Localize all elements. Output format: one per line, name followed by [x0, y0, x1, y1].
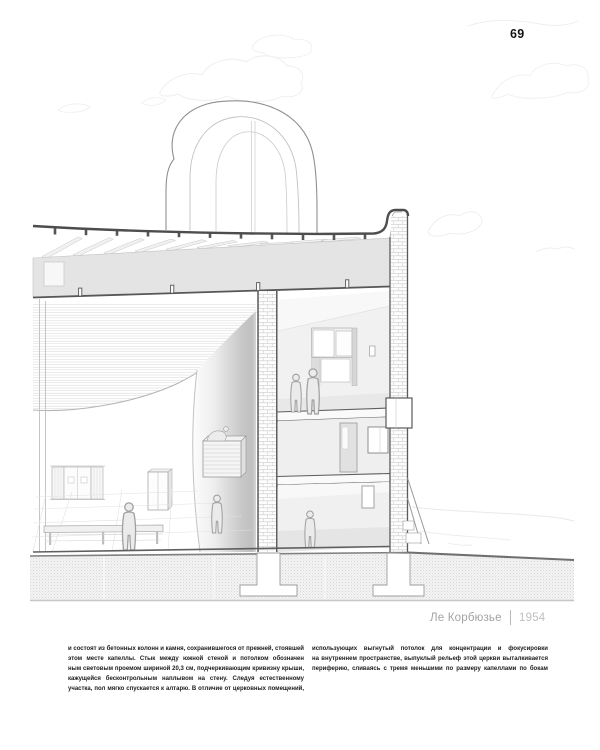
caption-architect: Ле Корбюзье — [430, 612, 502, 624]
ground — [30, 553, 574, 601]
book-page: 69 — [0, 0, 600, 750]
body-column-left: и состоят из бетонных колонн и камня, со… — [68, 644, 304, 694]
body-text-line: и состоят из бетонных колонн и камня, со… — [68, 644, 304, 654]
body-text-line: периферию, сливаясь с тремя меньшими по … — [312, 664, 548, 674]
body-text-line: на внутреннем пространстве, выпуклый рел… — [312, 654, 548, 664]
body-text-line: кажущейся бесконтрольным наплывом на сте… — [68, 674, 304, 684]
section-drawing — [0, 0, 600, 750]
hall-cabinet — [148, 469, 172, 510]
figure-caption: Ле Корбюзье 1954 — [430, 610, 545, 625]
body-text-line: ным световым проемом шириной 20,3 см, по… — [68, 664, 304, 674]
lower-room-window — [362, 486, 374, 508]
caption-year: 1954 — [519, 612, 545, 624]
figure-walking — [122, 503, 135, 550]
body-text-line: использующих выгнутый потолок для концен… — [312, 644, 548, 654]
right-wall — [386, 216, 429, 552]
window-box — [368, 427, 388, 453]
central-pier — [258, 291, 277, 552]
tower — [166, 101, 317, 233]
exterior-box — [386, 398, 412, 428]
caption-divider — [510, 610, 511, 625]
roof — [33, 210, 408, 298]
body-text-line: участка, пол мягко спускается к алтарю. … — [68, 684, 304, 694]
body-column-right: использующих выгнутый потолок для концен… — [312, 644, 548, 674]
bench — [44, 525, 163, 545]
wall-niche — [370, 346, 376, 356]
stair-rooms — [277, 291, 390, 552]
body-text-line: этом месте капеллы. Стык между южной сте… — [68, 654, 304, 664]
